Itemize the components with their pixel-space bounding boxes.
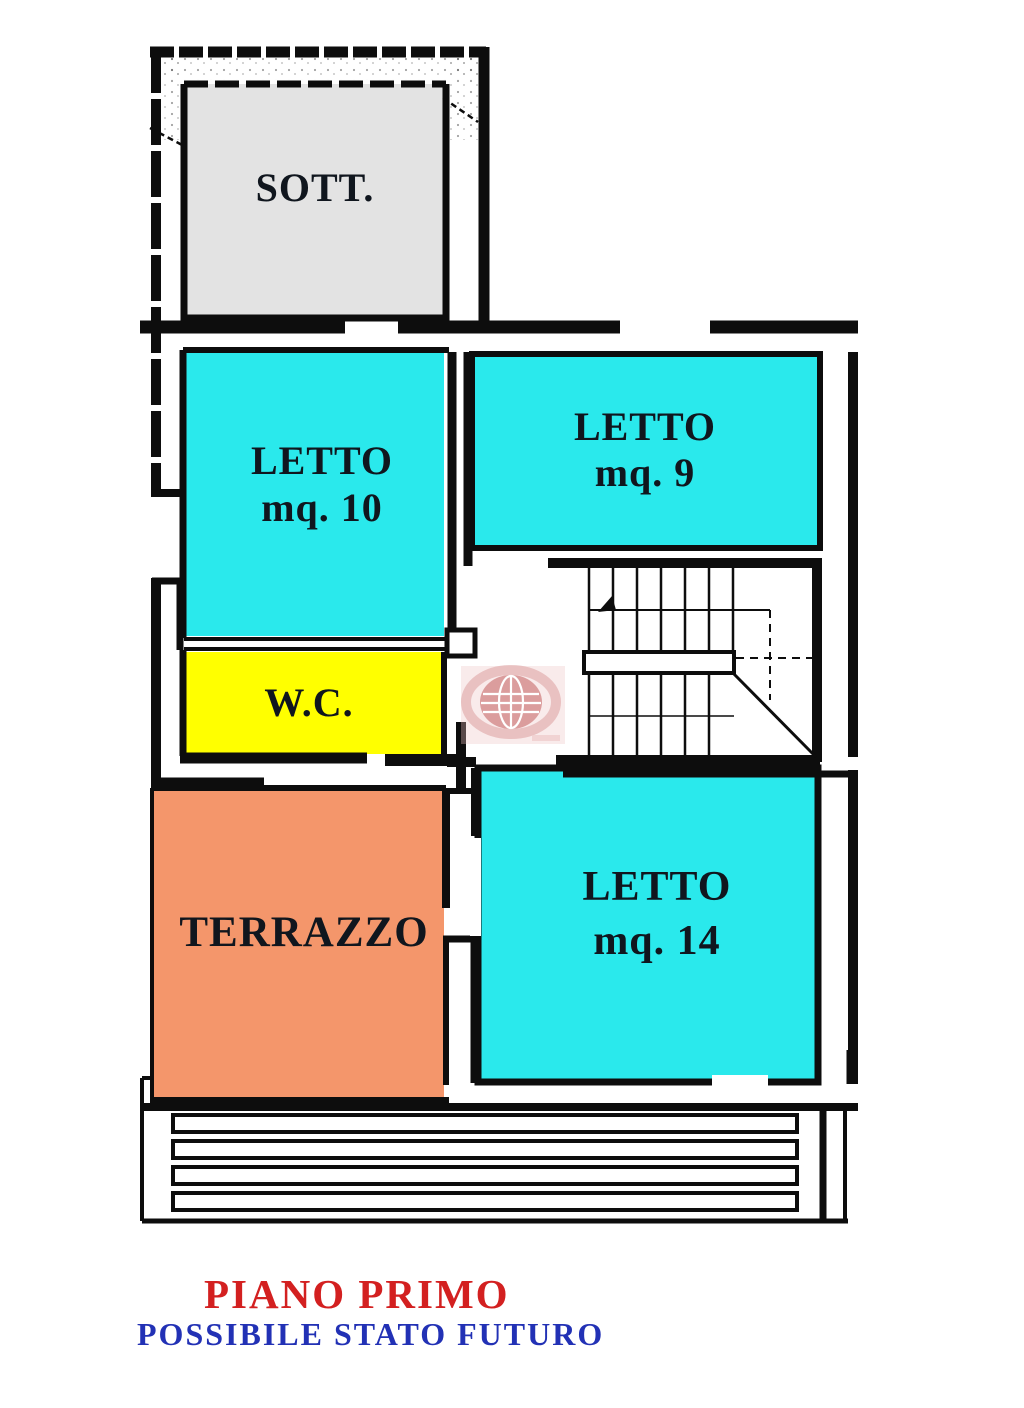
balcony-slat xyxy=(173,1115,797,1132)
room-area-letto10: mq. 10 xyxy=(261,485,383,530)
plan-subtitle: POSSIBILE STATO FUTURO xyxy=(137,1316,604,1352)
stair-landing xyxy=(584,652,734,673)
watermark-small-mark xyxy=(532,735,560,741)
room-area-letto14: mq. 14 xyxy=(593,918,720,964)
letto14-left-door-gap xyxy=(470,838,481,936)
room-label-letto14: LETTO xyxy=(583,864,732,910)
room-label-letto9: LETTO xyxy=(574,404,716,449)
floor-plan-drawing: SOTT. LETTO mq. 10 LETTO mq. 9 W.C. TERR… xyxy=(0,0,1024,1408)
room-label-wc: W.C. xyxy=(264,680,353,725)
balcony-slat xyxy=(173,1193,797,1210)
balcony-slat xyxy=(173,1141,797,1158)
globe-watermark-icon xyxy=(461,666,565,744)
room-label-sott: SOTT. xyxy=(256,165,375,210)
balcony-slat xyxy=(173,1167,797,1184)
room-area-letto9: mq. 9 xyxy=(595,450,696,495)
letto14-bottom-door-gap xyxy=(712,1075,768,1089)
stairs xyxy=(548,563,856,774)
footer: PIANO PRIMO POSSIBILE STATO FUTURO xyxy=(137,1271,604,1352)
room-label-terrazzo: TERRAZZO xyxy=(179,909,428,956)
plan-title: PIANO PRIMO xyxy=(204,1271,510,1317)
room-label-letto10: LETTO xyxy=(251,438,393,483)
floor-plan-page: SOTT. LETTO mq. 10 LETTO mq. 9 W.C. TERR… xyxy=(0,0,1024,1408)
stair-cut-line xyxy=(733,673,816,757)
